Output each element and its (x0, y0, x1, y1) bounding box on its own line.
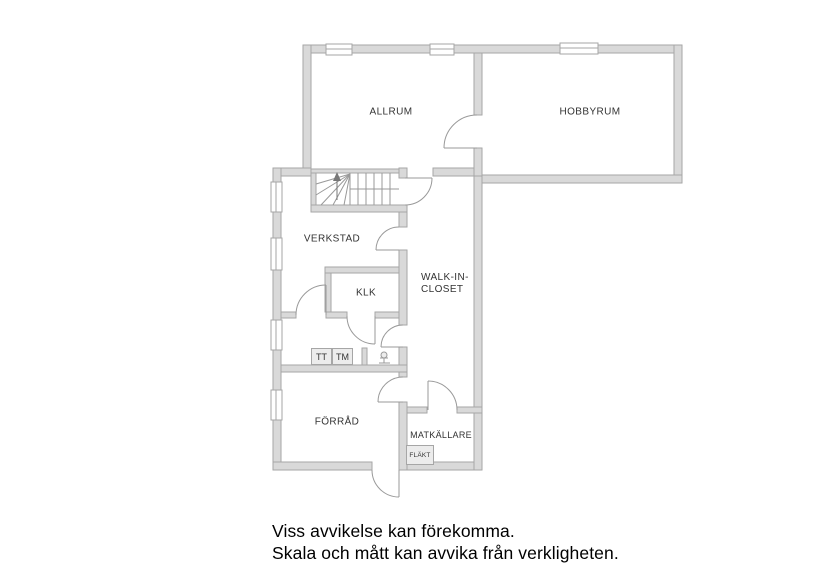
wall-central-1 (399, 212, 407, 227)
window-allrum-1 (326, 44, 352, 55)
window-hobbyrum (560, 43, 598, 54)
washer-tt-box: TT (311, 348, 332, 365)
wall-top (303, 45, 682, 53)
wall-verkstad-north (311, 205, 407, 212)
wall-upper-left (303, 45, 311, 176)
disclaimer-text: Viss avvikelse kan förekomma. Skala och … (272, 521, 619, 564)
walls (273, 45, 682, 470)
door-allrum-closet (405, 178, 432, 205)
floor-drain-icon (379, 352, 390, 363)
stairs-icon (316, 172, 399, 205)
window-left-2 (271, 238, 282, 270)
wall-bottom-left (273, 462, 372, 470)
room-label-verkstad: VERKSTAD (304, 234, 360, 245)
wall-lower-right (474, 176, 482, 470)
walk-in-closet-line1: WALK-IN- (421, 272, 469, 284)
window-left-4 (271, 390, 282, 420)
wall-upper-right (674, 45, 682, 183)
wall-laundry-stub (362, 348, 367, 365)
flakt-box: FLÄKT (406, 445, 434, 465)
wall-central-2 (399, 250, 407, 325)
room-label-walk-in-closet: WALK-IN- CLOSET (421, 272, 469, 296)
room-label-hobbyrum: HOBBYRUM (560, 107, 621, 118)
walk-in-closet-line2: CLOSET (421, 284, 469, 296)
door-forrad (378, 377, 403, 402)
door-matkallare (428, 381, 457, 410)
wall-stair-left (311, 173, 316, 205)
disclaimer-line1: Viss avvikelse kan förekomma. (272, 521, 619, 543)
wall-lower-left (273, 168, 281, 470)
room-label-allrum: ALLRUM (370, 107, 413, 118)
window-allrum-2 (430, 44, 454, 55)
disclaimer-line2: Skala och mått kan avvika från verklighe… (272, 543, 619, 565)
wall-klk-south-2 (375, 312, 399, 318)
room-label-klk: KLK (356, 288, 376, 299)
wall-matkallare-north-1 (407, 407, 427, 413)
room-label-matkallare: MATKÄLLARE (410, 430, 472, 440)
room-label-forrad: FÖRRÅD (315, 417, 360, 428)
wall-divider-upper (474, 53, 482, 115)
wall-hall-door-stub (399, 168, 407, 178)
wall-verkstad-south-1 (281, 312, 296, 318)
door-allrum-hobbyrum (444, 115, 477, 148)
wall-hobbyrum-bottom (482, 175, 682, 183)
window-left-3 (271, 320, 282, 350)
window-left-1 (271, 182, 282, 212)
door-laundry-closet (381, 325, 403, 347)
wall-laundry-south (281, 365, 407, 372)
floor-plan-page: ALLRUM HOBBYRUM VERKSTAD KLK WALK-IN- CL… (0, 0, 820, 580)
door-verkstad (376, 227, 399, 250)
dryer-tm-box: TM (332, 348, 353, 365)
wall-matkallare-north-2 (457, 407, 482, 413)
wall-klk-south-1 (326, 312, 347, 318)
door-exterior (372, 470, 399, 497)
wall-klk-north (325, 267, 399, 273)
door-verkstad-laundry (296, 285, 326, 315)
wall-stair-top-line (311, 169, 403, 173)
wall-allrum-bottom (433, 168, 474, 176)
floor-plan-drawing (0, 0, 820, 580)
door-klk (347, 316, 375, 344)
wall-divider-lower (474, 148, 482, 176)
